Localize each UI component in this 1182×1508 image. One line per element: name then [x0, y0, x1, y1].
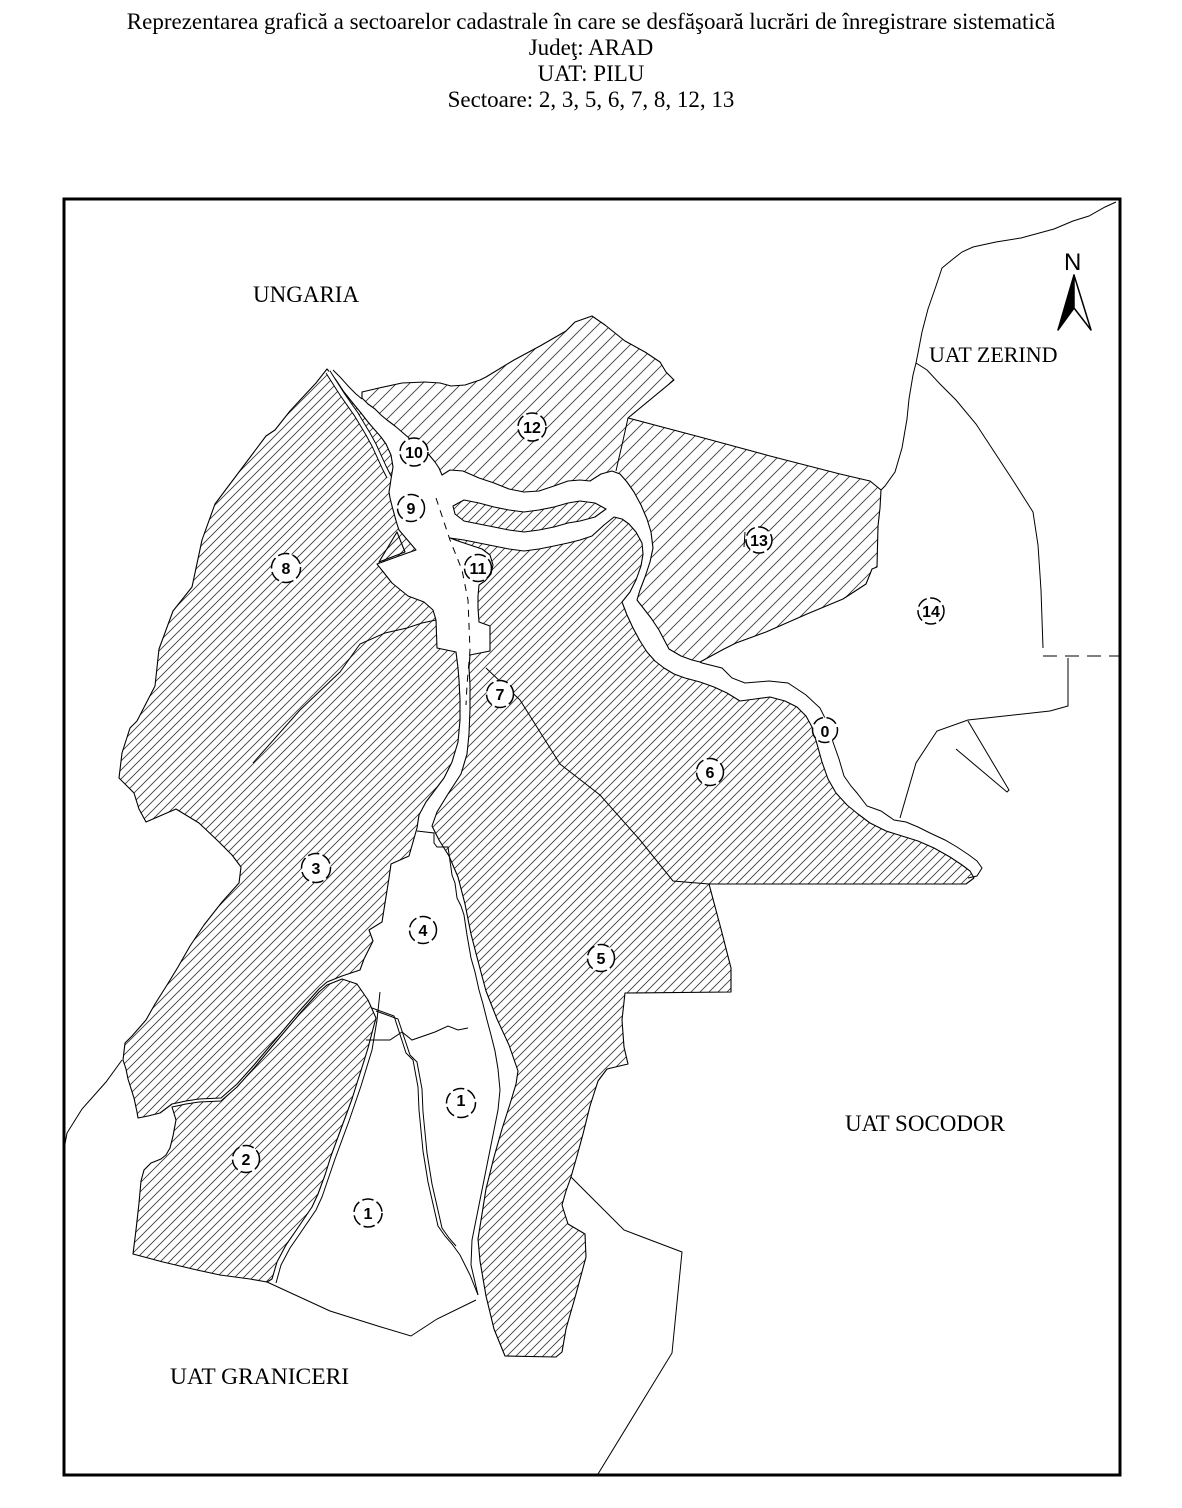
svg-text:10: 10 — [405, 445, 423, 462]
svg-text:4: 4 — [419, 923, 428, 940]
svg-text:1: 1 — [364, 1206, 373, 1223]
svg-text:11: 11 — [470, 561, 487, 578]
svg-text:UNGARIA: UNGARIA — [253, 282, 359, 307]
svg-text:8: 8 — [282, 561, 291, 578]
svg-text:0: 0 — [821, 724, 830, 741]
svg-text:13: 13 — [750, 533, 768, 550]
svg-text:1: 1 — [457, 1093, 466, 1110]
svg-text:UAT ZERIND: UAT ZERIND — [929, 342, 1058, 367]
svg-text:N: N — [1064, 249, 1081, 276]
svg-text:2: 2 — [242, 1152, 251, 1169]
svg-text:14: 14 — [922, 604, 940, 621]
svg-text:9: 9 — [407, 501, 416, 518]
svg-text:7: 7 — [496, 687, 505, 704]
svg-text:6: 6 — [706, 765, 715, 782]
svg-text:5: 5 — [597, 951, 606, 968]
svg-text:12: 12 — [523, 420, 541, 437]
svg-text:3: 3 — [312, 861, 321, 878]
svg-text:UAT GRANICERI: UAT GRANICERI — [170, 1364, 349, 1390]
svg-text:UAT SOCODOR: UAT SOCODOR — [845, 1111, 1006, 1136]
